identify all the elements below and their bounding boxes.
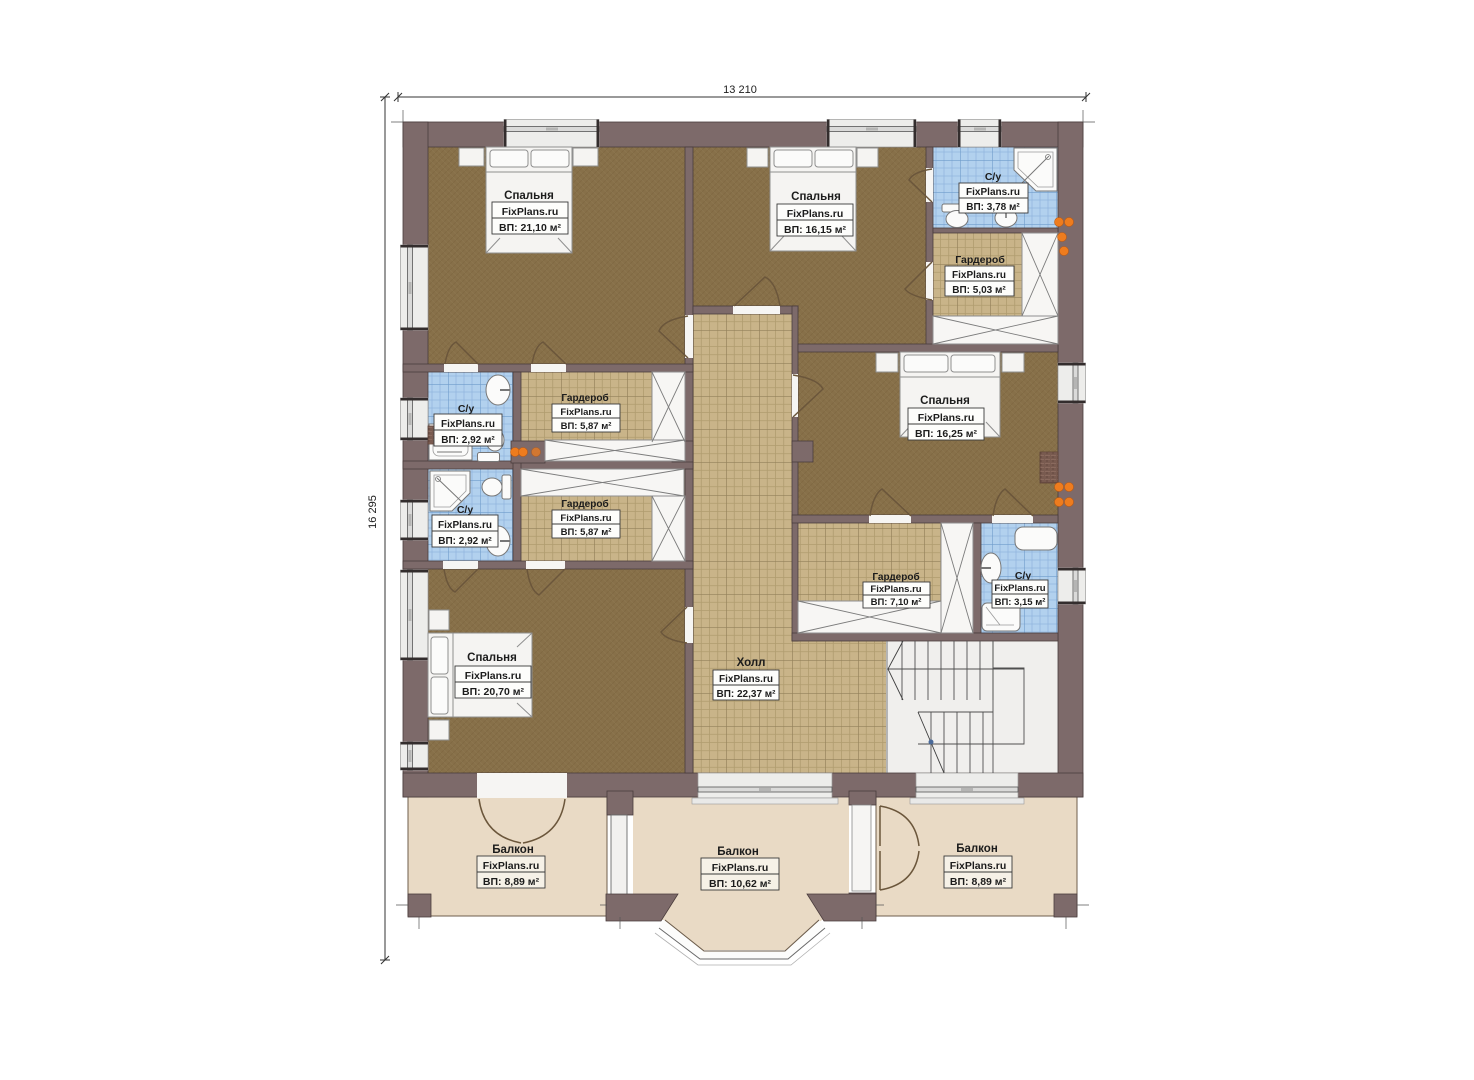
svg-text:FixPlans.ru: FixPlans.ru	[787, 208, 844, 220]
svg-text:С/у: С/у	[458, 403, 475, 415]
svg-text:FixPlans.ru: FixPlans.ru	[502, 206, 559, 218]
svg-text:FixPlans.ru: FixPlans.ru	[950, 860, 1007, 872]
svg-text:Гардероб: Гардероб	[872, 571, 919, 583]
svg-text:FixPlans.ru: FixPlans.ru	[465, 670, 522, 682]
svg-text:ВП: 7,10 м²: ВП: 7,10 м²	[871, 597, 922, 608]
svg-text:ВП: 22,37 м²: ВП: 22,37 м²	[716, 689, 776, 700]
svg-text:ВП: 16,15 м²: ВП: 16,15 м²	[784, 224, 847, 236]
svg-text:FixPlans.ru: FixPlans.ru	[438, 520, 492, 531]
svg-text:Балкон: Балкон	[956, 843, 998, 855]
svg-text:ВП: 5,87 м²: ВП: 5,87 м²	[561, 527, 612, 538]
svg-text:Спальня: Спальня	[467, 652, 517, 664]
svg-text:16 295: 16 295	[367, 495, 379, 529]
svg-text:FixPlans.ru: FixPlans.ru	[560, 513, 611, 524]
svg-text:FixPlans.ru: FixPlans.ru	[483, 860, 540, 872]
svg-text:ВП: 2,92 м²: ВП: 2,92 м²	[438, 536, 492, 547]
svg-text:ВП: 5,87 м²: ВП: 5,87 м²	[561, 421, 612, 432]
svg-text:ВП: 20,70 м²: ВП: 20,70 м²	[462, 686, 525, 698]
svg-text:FixPlans.ru: FixPlans.ru	[712, 862, 769, 874]
svg-text:ВП: 10,62 м²: ВП: 10,62 м²	[709, 878, 772, 890]
svg-text:ВП: 8,89 м²: ВП: 8,89 м²	[483, 876, 540, 888]
svg-text:Балкон: Балкон	[492, 844, 534, 856]
svg-text:Гардероб: Гардероб	[561, 392, 608, 404]
svg-text:FixPlans.ru: FixPlans.ru	[719, 674, 773, 685]
svg-text:FixPlans.ru: FixPlans.ru	[994, 583, 1045, 594]
svg-text:FixPlans.ru: FixPlans.ru	[441, 419, 495, 430]
svg-text:ВП: 21,10 м²: ВП: 21,10 м²	[499, 222, 562, 234]
svg-text:FixPlans.ru: FixPlans.ru	[918, 412, 975, 424]
svg-text:Гардероб: Гардероб	[955, 254, 1005, 266]
svg-text:ВП: 2,92 м²: ВП: 2,92 м²	[441, 435, 495, 446]
svg-text:Холл: Холл	[737, 657, 766, 669]
svg-text:Спальня: Спальня	[504, 190, 554, 202]
svg-text:FixPlans.ru: FixPlans.ru	[952, 270, 1006, 281]
svg-text:ВП: 8,89 м²: ВП: 8,89 м²	[950, 876, 1007, 888]
svg-text:С/у: С/у	[457, 504, 474, 516]
svg-text:Гардероб: Гардероб	[561, 498, 608, 510]
svg-text:FixPlans.ru: FixPlans.ru	[560, 407, 611, 418]
svg-text:ВП: 16,25 м²: ВП: 16,25 м²	[915, 428, 978, 440]
svg-text:FixPlans.ru: FixPlans.ru	[966, 187, 1020, 198]
svg-text:FixPlans.ru: FixPlans.ru	[870, 584, 921, 595]
svg-text:ВП: 5,03 м²: ВП: 5,03 м²	[952, 285, 1006, 296]
svg-text:Балкон: Балкон	[717, 846, 759, 858]
svg-text:Спальня: Спальня	[920, 395, 970, 407]
svg-text:13 210: 13 210	[723, 84, 757, 96]
svg-text:ВП: 3,78 м²: ВП: 3,78 м²	[966, 202, 1020, 213]
svg-text:ВП: 3,15 м²: ВП: 3,15 м²	[995, 597, 1046, 608]
svg-text:Спальня: Спальня	[791, 191, 841, 203]
svg-text:С/у: С/у	[985, 171, 1002, 183]
